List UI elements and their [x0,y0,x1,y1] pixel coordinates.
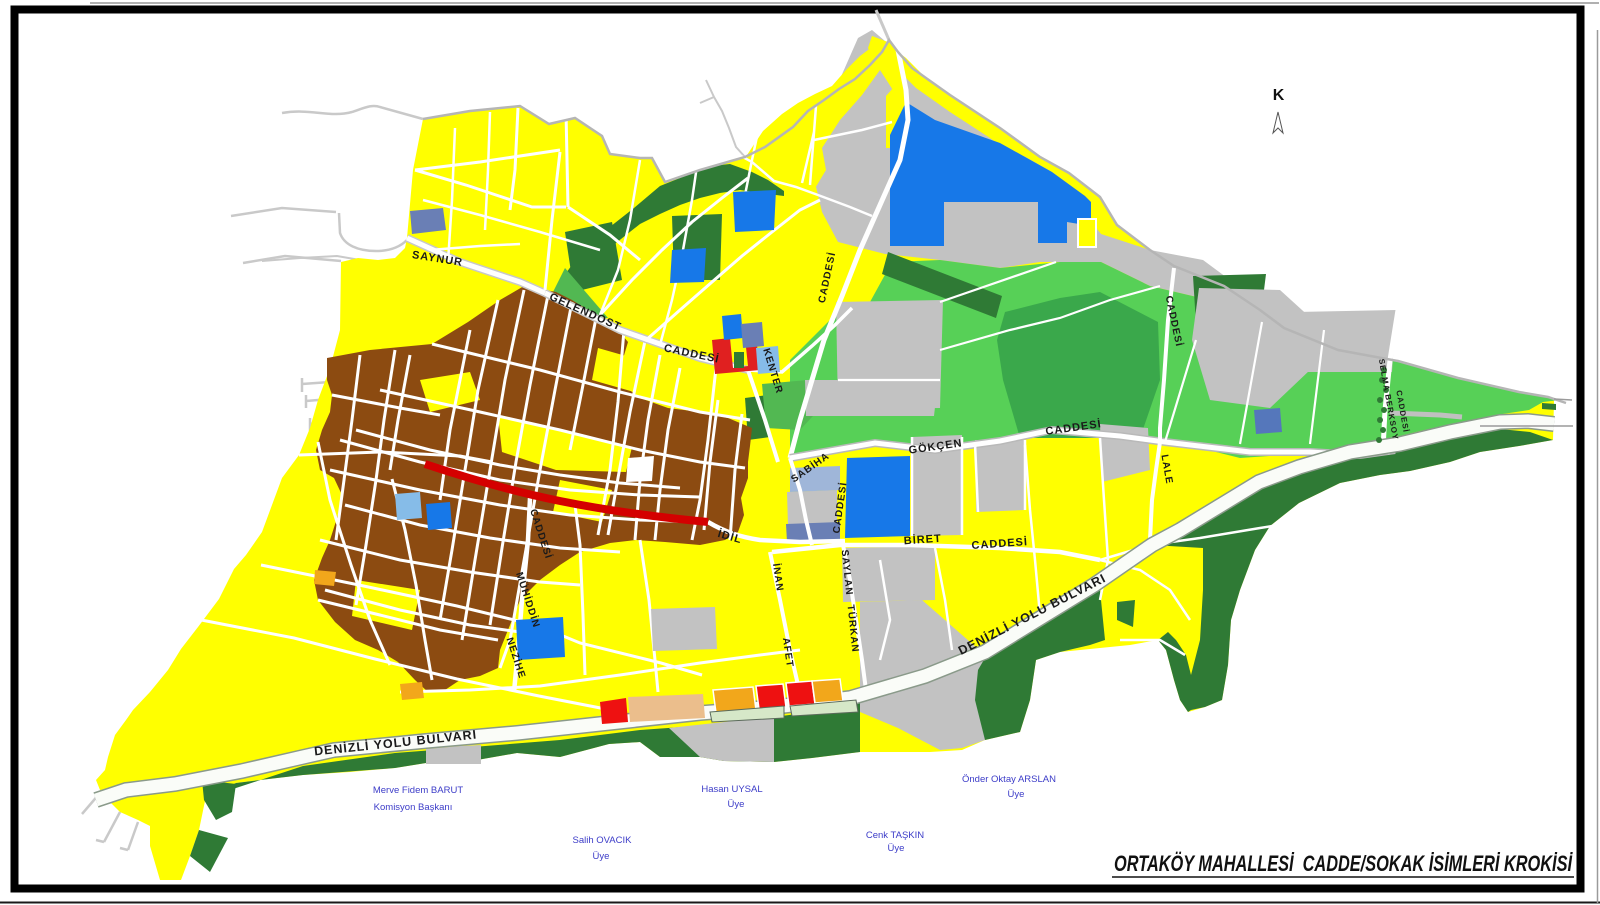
svg-text:Üye: Üye [1008,789,1025,800]
svg-text:BİRET: BİRET [903,532,942,548]
svg-text:Önder Oktay ARSLAN: Önder Oktay ARSLAN [962,774,1056,785]
svg-text:K: K [1273,87,1286,104]
svg-text:Hasan UYSAL: Hasan UYSAL [701,784,762,795]
svg-text:Üye: Üye [593,851,610,862]
svg-text:Salih OVACIK: Salih OVACIK [573,835,633,846]
svg-text:Üye: Üye [888,843,905,854]
svg-text:Üye: Üye [728,799,745,810]
svg-text:Komisyon Başkanı: Komisyon Başkanı [374,802,453,813]
svg-text:ORTAKÖY MAHALLESİ CADDE/SOKAK: ORTAKÖY MAHALLESİ CADDE/SOKAK İSİMLERİ K… [1114,851,1573,876]
svg-text:Merve Fidem BARUT: Merve Fidem BARUT [373,785,463,796]
svg-text:Cenk TAŞKIN: Cenk TAŞKIN [866,830,924,841]
